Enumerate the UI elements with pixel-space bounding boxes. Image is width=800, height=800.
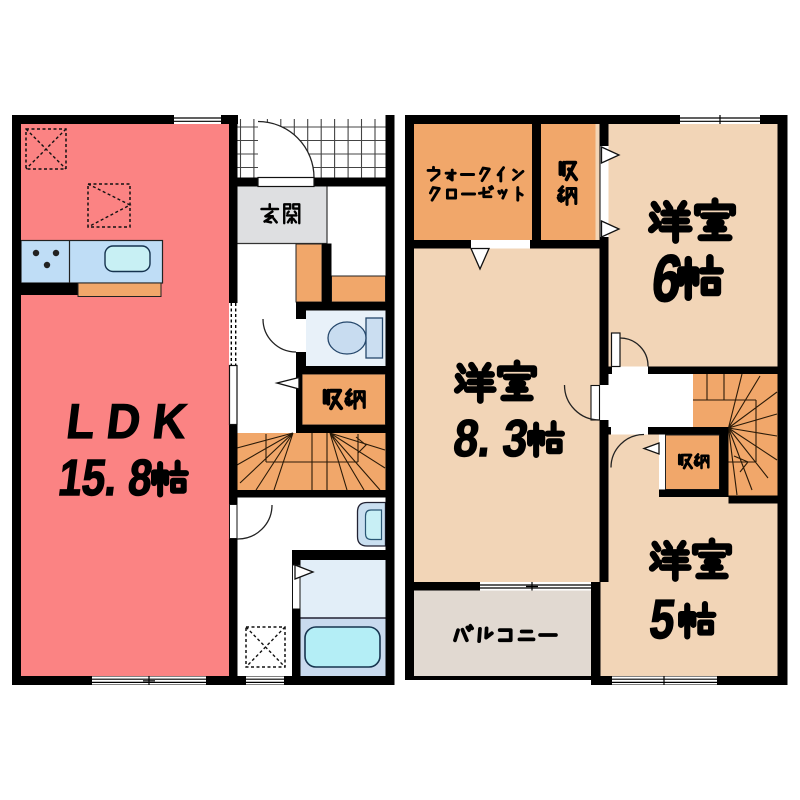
svg-text:15. 8: 15. 8 xyxy=(56,449,156,506)
svg-text:L D K: L D K xyxy=(64,395,191,449)
svg-text:8. 3: 8. 3 xyxy=(451,410,532,468)
